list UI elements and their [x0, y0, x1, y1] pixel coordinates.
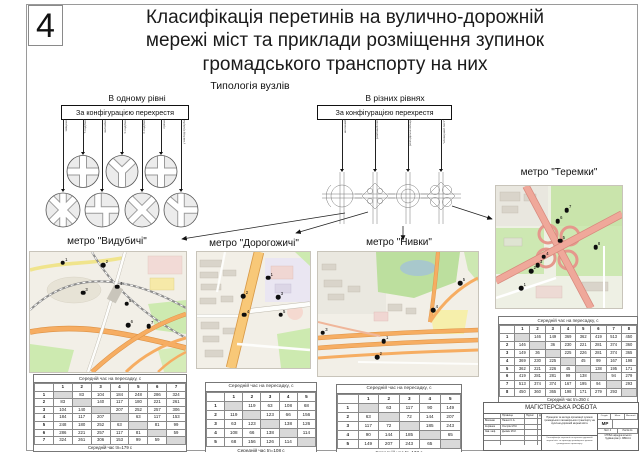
stamp-theme: Принципи та методи організації зупинок г… [542, 414, 597, 436]
branch-label: у вигляді тризуба [182, 120, 186, 144]
stamp-sheets-total: Листів 11 [618, 429, 638, 434]
multi-level-heading: В різних рівнях [335, 93, 455, 103]
branch-label: пряме [162, 120, 166, 129]
dorohozhychi-table-caption: Середній час на пересадку, с [206, 383, 316, 392]
table-footer-average: Середній час tп=133 с [338, 448, 461, 452]
nyvky-table: Середній час на пересадку, с 12345163117… [336, 384, 462, 452]
drawing-title-block: МАГІСТЕРСЬКА РОБОТА Прізвище Підпис Дата… [483, 402, 639, 451]
stamp-organization: КНУБА кафедра міського будівництва гр. М… [598, 434, 638, 450]
stamp-sheet-no: Лист 4 [598, 429, 618, 434]
branch-label: ромбовий тип [375, 120, 379, 139]
title-line-3: громадського транспорту на них [100, 53, 590, 76]
page-title: Класифікація перетинів на вулично-дорожн… [100, 6, 590, 76]
vydubychi-title: метро "Видубичі" [47, 236, 167, 247]
poster-page: 4 Класифікація перетинів на вулично-доро… [0, 0, 640, 452]
stamp-stage: МР [598, 420, 613, 428]
single-level-config-box: За конфігурацією перехрестя [61, 105, 189, 120]
branch-label: звичайне [103, 120, 107, 133]
transfer-time-matrix: 1234567811461493693624195134502146362302… [499, 325, 637, 404]
teremky-title: метро "Теремки" [496, 167, 622, 178]
branch-label: У-подібне [123, 120, 127, 134]
teremky-table: Середній час на пересадку, с 12345678114… [498, 316, 638, 405]
nyvky-title: метро "Нивки" [340, 237, 458, 248]
stamp-sheet-name: Класифікація перетинів на вулично-дорожн… [542, 436, 597, 450]
transfer-time-matrix: 1234511196310868211912366156363123138126… [206, 392, 316, 452]
sheet-number: 4 [28, 5, 63, 46]
branch-label: зміщене [64, 120, 68, 132]
title-line-1: Класифікація перетинів на вулично-дорожн… [100, 6, 590, 29]
single-level-branches: зміщенеТ-подібнезвичайнеУ-подібнеХ-подіб… [63, 119, 181, 194]
table-footer-average: Середній час tп=108 с [207, 446, 316, 452]
map-dorohozhychi: 12345 [197, 252, 310, 368]
transfer-time-matrix: 1234567183104184248286324283140117180221… [34, 383, 186, 451]
branch-label: Х-подібне [142, 120, 146, 134]
table-footer-average: Середній час tп=179 с [35, 444, 186, 451]
branch-label: "клеверний лист" [442, 120, 446, 144]
multi-level-config-box: За конфігурацією перехрестя [317, 105, 452, 120]
multi-level-branches: неповнийромбовий типрозподільче кільце"к… [342, 119, 441, 174]
vydubychi-table: Середній час на пересадку, с 12345671831… [33, 374, 187, 452]
nyvky-table-caption: Середній час на пересадку, с [337, 385, 461, 394]
branch-label: Т-подібне [83, 120, 87, 134]
title-line-2: мережі міст та приклади розміщення зупин… [100, 29, 590, 52]
branch-label: розподільче кільце [408, 120, 412, 146]
teremky-table-caption: Середній час на пересадку, с [499, 317, 637, 325]
branch-label: неповний [343, 120, 347, 133]
typology-label: Типологія вузлів [170, 80, 330, 92]
single-level-heading: В одному рівні [77, 93, 197, 103]
stamp-title: МАГІСТЕРСЬКА РОБОТА [484, 403, 638, 414]
map-teremky: 12345678 [496, 186, 622, 308]
dorohozhychi-table: Середній час на пересадку, с 12345111963… [205, 382, 317, 452]
transfer-time-matrix: 1234516311790149263721442073117721852434… [337, 394, 461, 452]
stamp-people: Прізвище Підпис Дата Виконав Пашко С.А. … [484, 414, 542, 450]
vydubychi-table-caption: Середній час на пересадку, с [34, 375, 186, 383]
map-vydubychi: 1234567 [30, 252, 186, 372]
dorohozhychi-title: метро "Дорогожичі" [195, 238, 313, 249]
map-nyvky: 12345 [318, 252, 478, 376]
